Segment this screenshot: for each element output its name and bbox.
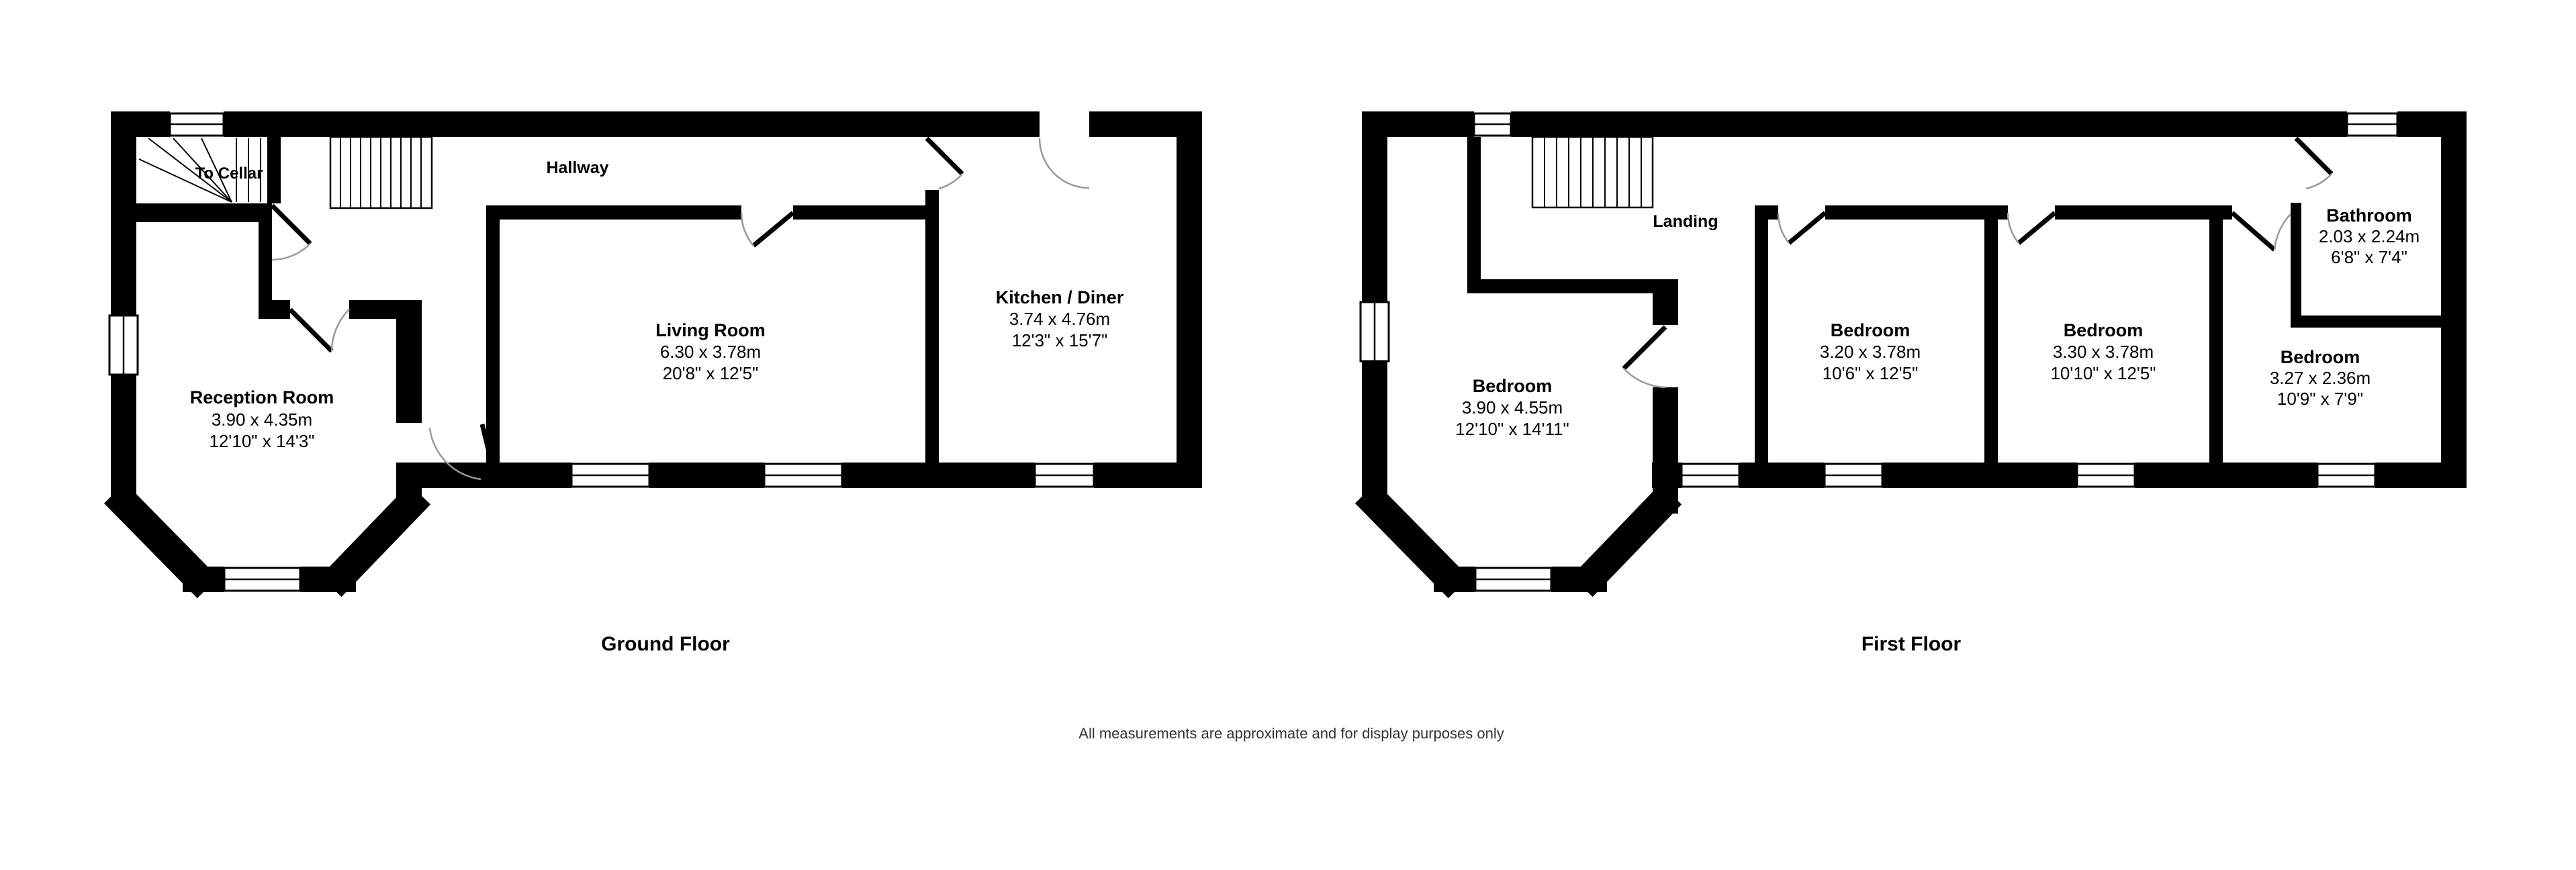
room-name-label: Bedroom bbox=[1473, 376, 1553, 396]
room-imperial-label: 6'8" x 7'4" bbox=[2331, 247, 2407, 267]
first-doors bbox=[1624, 138, 2332, 387]
ground-floor-title: Ground Floor bbox=[601, 633, 730, 655]
room-imperial-label: 10'10" x 12'5" bbox=[2050, 363, 2156, 383]
door-bathroom bbox=[2296, 138, 2332, 189]
door-bedroom2 bbox=[1778, 213, 1825, 243]
floorplan-svg: To Cellar Hallway Reception Room 3.90 x … bbox=[0, 0, 2576, 870]
hallway-label: Hallway bbox=[546, 158, 608, 177]
window-living-2 bbox=[764, 464, 842, 487]
room-name-label: Bathroom bbox=[2326, 205, 2412, 226]
room-name-label: Bedroom bbox=[2281, 347, 2360, 367]
reception-room-label: Reception Room 3.90 x 4.35m 12'10" x 14'… bbox=[190, 387, 334, 451]
window-top-left bbox=[170, 113, 224, 136]
room-metric-label: 6.30 x 3.78m bbox=[660, 342, 761, 362]
hall-staircase bbox=[330, 137, 432, 208]
landing-label: Landing bbox=[1653, 212, 1718, 231]
room-name-label: Living Room bbox=[655, 320, 766, 340]
window-bedroom1-left bbox=[1361, 302, 1389, 361]
door-living-room bbox=[741, 213, 793, 246]
door-entrance bbox=[1040, 138, 1089, 188]
door-reception-upper bbox=[290, 309, 349, 351]
bathroom-label: Bathroom 2.03 x 2.24m 6'8" x 7'4" bbox=[2319, 205, 2420, 267]
floorplan-canvas: To Cellar Hallway Reception Room 3.90 x … bbox=[0, 0, 2576, 870]
bay-bevel-left bbox=[125, 503, 197, 577]
landing-staircase bbox=[1532, 137, 1653, 207]
room-imperial-label: 12'10" x 14'11" bbox=[1455, 419, 1569, 439]
door-bedroom1 bbox=[1624, 327, 1665, 387]
disclaimer-text: All measurements are approximate and for… bbox=[1078, 725, 1504, 742]
room-metric-label: 3.90 x 4.55m bbox=[1462, 397, 1563, 418]
first-floor-title: First Floor bbox=[1861, 633, 1962, 655]
room-metric-label: 3.74 x 4.76m bbox=[1009, 309, 1110, 329]
window-bedroom2-bottom bbox=[1825, 464, 1882, 487]
first-labels: Landing Bedroom 3.90 x 4.55m 12'10" x 14… bbox=[1455, 205, 2420, 439]
kitchen-diner-label: Kitchen / Diner 3.74 x 4.76m 12'3" x 15'… bbox=[996, 287, 1124, 350]
room-metric-label: 3.20 x 3.78m bbox=[1820, 342, 1921, 362]
bay-bevel-left bbox=[1376, 503, 1448, 577]
window-living-1 bbox=[571, 464, 649, 487]
room-imperial-label: 12'3" x 15'7" bbox=[1012, 330, 1108, 350]
bedroom4-label: Bedroom 3.27 x 2.36m 10'9" x 7'9" bbox=[2270, 347, 2371, 409]
bedroom2-label: Bedroom 3.20 x 3.78m 10'6" x 12'5" bbox=[1820, 320, 1921, 383]
room-name-label: Bedroom bbox=[1831, 320, 1911, 340]
door-bedroom3 bbox=[2008, 213, 2055, 243]
room-imperial-label: 10'6" x 12'5" bbox=[1823, 363, 1919, 383]
room-name-label: Bedroom bbox=[2064, 320, 2144, 340]
ground-walls bbox=[111, 111, 1202, 592]
window-landing-bottom bbox=[1682, 464, 1739, 487]
room-metric-label: 2.03 x 2.24m bbox=[2319, 226, 2420, 246]
room-name-label: Kitchen / Diner bbox=[996, 287, 1124, 307]
room-imperial-label: 20'8" x 12'5" bbox=[663, 363, 759, 383]
window-bedroom3-bottom bbox=[2077, 464, 2135, 487]
window-top-left bbox=[1474, 113, 1511, 136]
door-bedroom4 bbox=[2232, 213, 2291, 250]
door-cellar bbox=[272, 205, 310, 260]
window-bedroom4-bottom bbox=[2317, 464, 2375, 487]
living-room-label: Living Room 6.30 x 3.78m 20'8" x 12'5" bbox=[655, 320, 766, 383]
window-bay-reception bbox=[224, 568, 300, 591]
window-bay-bedroom1 bbox=[1475, 568, 1551, 591]
room-name-label: Reception Room bbox=[190, 387, 334, 407]
window-kitchen bbox=[1035, 464, 1094, 487]
bay-bevel-right bbox=[1592, 505, 1661, 576]
room-metric-label: 3.27 x 2.36m bbox=[2270, 368, 2371, 388]
room-metric-label: 3.90 x 4.35m bbox=[212, 409, 312, 430]
bedroom3-label: Bedroom 3.30 x 3.78m 10'10" x 12'5" bbox=[2050, 320, 2156, 383]
bedroom1-label: Bedroom 3.90 x 4.55m 12'10" x 14'11" bbox=[1455, 376, 1569, 439]
window-reception-left bbox=[109, 316, 138, 375]
bay-bevel-right bbox=[341, 505, 410, 576]
room-imperial-label: 12'10" x 14'3" bbox=[209, 431, 314, 451]
room-metric-label: 3.30 x 3.78m bbox=[2053, 342, 2154, 362]
to-cellar-label: To Cellar bbox=[195, 164, 263, 183]
ground-floor-plan: To Cellar Hallway Reception Room 3.90 x … bbox=[109, 111, 1202, 592]
room-imperial-label: 10'9" x 7'9" bbox=[2277, 389, 2363, 409]
window-bathroom-top bbox=[2347, 113, 2397, 136]
first-floor-plan: Landing Bedroom 3.90 x 4.55m 12'10" x 14… bbox=[1361, 111, 2467, 592]
door-kitchen-hall bbox=[927, 138, 962, 189]
